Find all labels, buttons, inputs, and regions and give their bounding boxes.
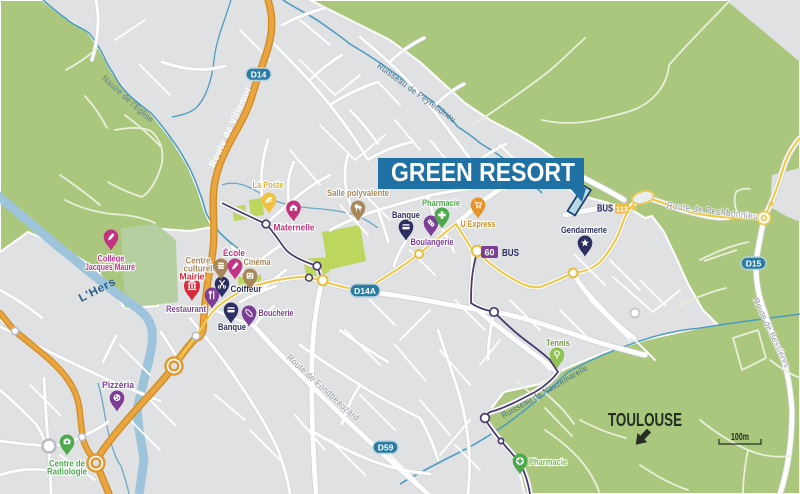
svg-text:Mairie: Mairie [180, 272, 205, 283]
svg-text:Radiologie: Radiologie [47, 467, 87, 478]
svg-text:GREEN RESORT: GREEN RESORT [391, 157, 575, 187]
svg-text:Tennis: Tennis [546, 338, 570, 349]
svg-text:Gendarmerie: Gendarmerie [561, 225, 607, 236]
svg-text:BUS: BUS [597, 204, 613, 215]
svg-text:60: 60 [484, 248, 494, 258]
svg-text:Coiffeur: Coiffeur [231, 284, 262, 295]
svg-text:Boulangerie: Boulangerie [411, 237, 454, 248]
svg-text:La Poste: La Poste [253, 180, 284, 191]
svg-text:Boucherie: Boucherie [259, 308, 294, 319]
svg-text:Restaurant: Restaurant [166, 304, 207, 315]
svg-text:D14: D14 [251, 70, 267, 80]
svg-text:TOULOUSE: TOULOUSE [608, 409, 682, 430]
svg-text:D15: D15 [746, 259, 762, 269]
svg-text:Maternelle: Maternelle [274, 223, 315, 234]
svg-text:Cinéma: Cinéma [244, 257, 272, 268]
svg-text:Pizzéria: Pizzéria [102, 380, 135, 391]
svg-text:D59: D59 [378, 443, 394, 453]
svg-text:Pharmacie: Pharmacie [529, 457, 567, 468]
svg-text:113: 113 [616, 205, 628, 214]
svg-text:École: École [223, 248, 245, 259]
svg-text:BUS: BUS [502, 248, 519, 259]
svg-text:Jacques Mauré: Jacques Mauré [85, 262, 135, 273]
svg-text:Salle polyvalente: Salle polyvalente [327, 188, 389, 199]
svg-text:U Express: U Express [461, 219, 496, 230]
svg-text:100m: 100m [731, 432, 749, 443]
svg-text:Pharmacie: Pharmacie [422, 198, 460, 209]
svg-text:D14A: D14A [354, 286, 376, 296]
svg-text:Banque: Banque [392, 210, 420, 221]
svg-text:Banque: Banque [218, 322, 246, 333]
